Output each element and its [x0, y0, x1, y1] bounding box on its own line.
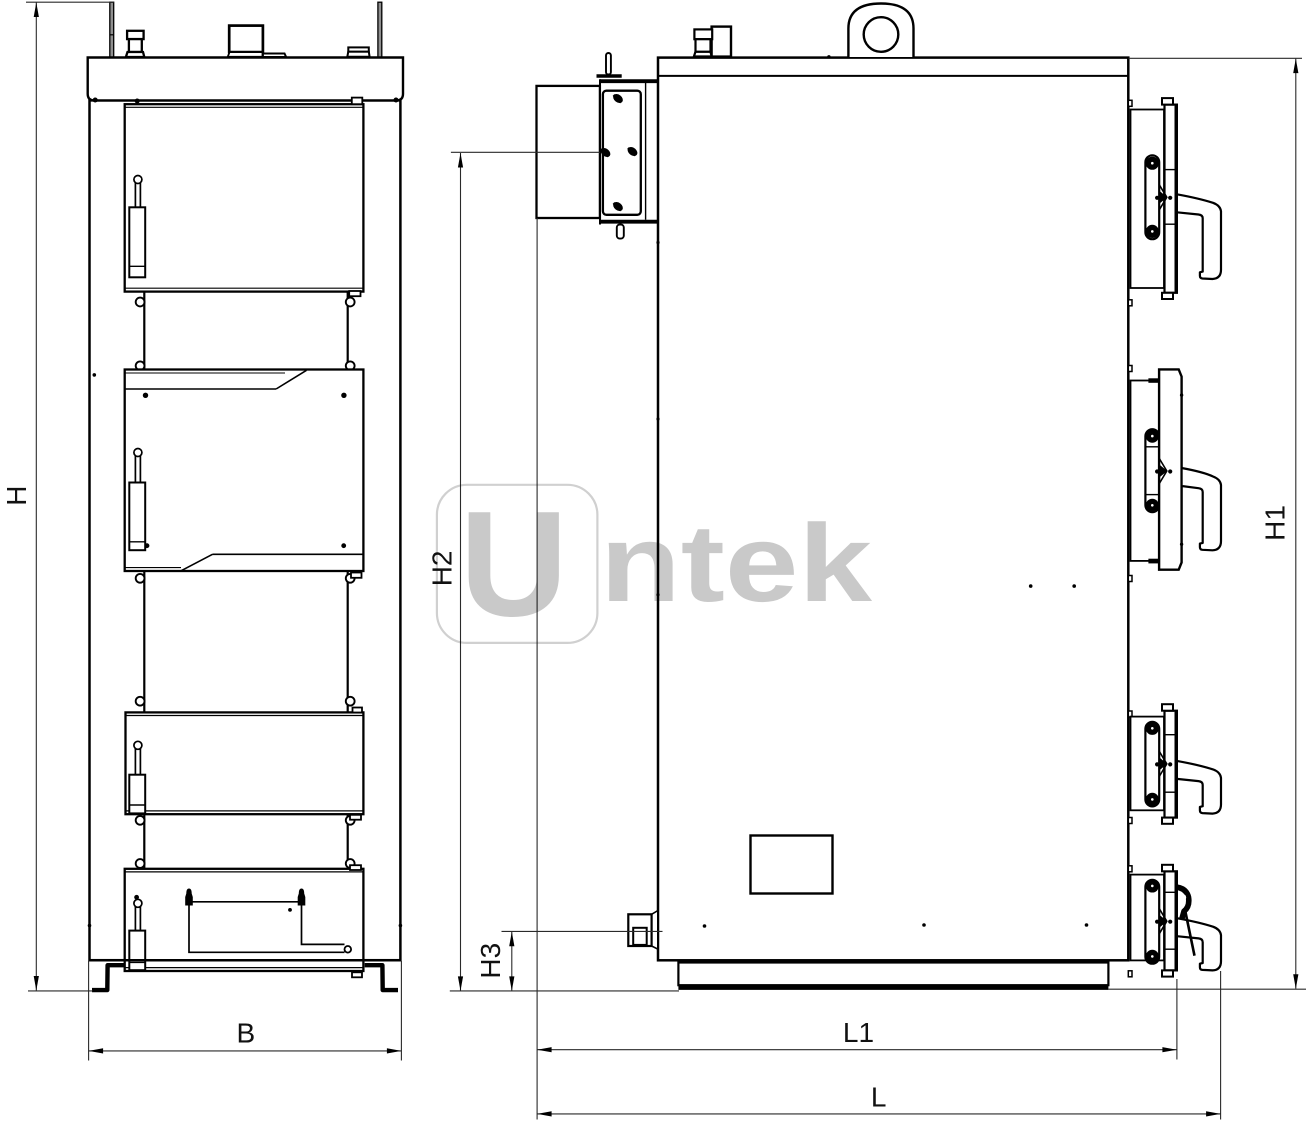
- svg-text:B: B: [236, 1018, 255, 1049]
- svg-text:L: L: [871, 1082, 887, 1113]
- svg-text:H: H: [1, 485, 32, 505]
- svg-text:U: U: [460, 480, 568, 648]
- svg-text:L1: L1: [843, 1017, 874, 1048]
- svg-text:H3: H3: [475, 943, 506, 979]
- svg-text:H2: H2: [427, 551, 458, 587]
- svg-text:H1: H1: [1259, 505, 1290, 541]
- svg-text:ntek: ntek: [600, 502, 873, 625]
